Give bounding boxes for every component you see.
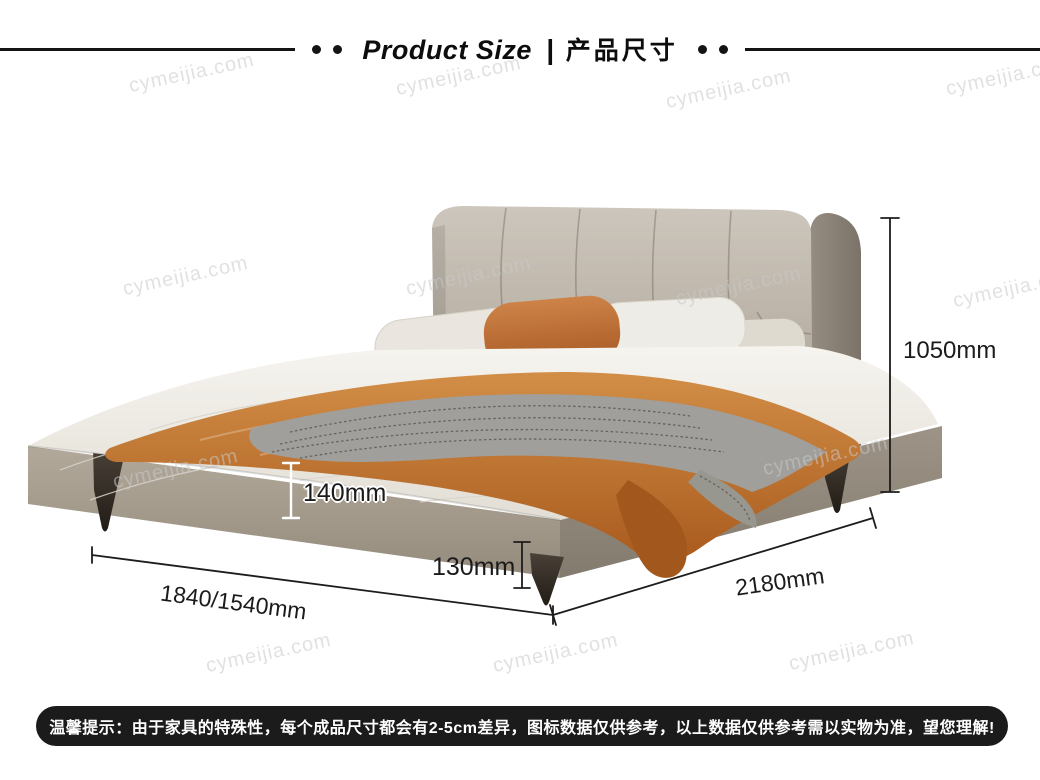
height-dimension-label: 1050mm	[903, 337, 996, 365]
leg-height-dimension-label: 130mm	[432, 553, 512, 582]
notice-text: 温馨提示：由于家具的特殊性，每个成品尺寸都会有2-5cm差异，图标数据仅供参考，…	[49, 714, 995, 738]
bed-illustration	[0, 0, 1040, 780]
frame-height-dimension-label: 140mm	[303, 479, 386, 508]
page: Product Size | 产品尺寸	[0, 0, 1040, 780]
notice-bar: 温馨提示：由于家具的特殊性，每个成品尺寸都会有2-5cm差异，图标数据仅供参考，…	[36, 706, 1008, 746]
